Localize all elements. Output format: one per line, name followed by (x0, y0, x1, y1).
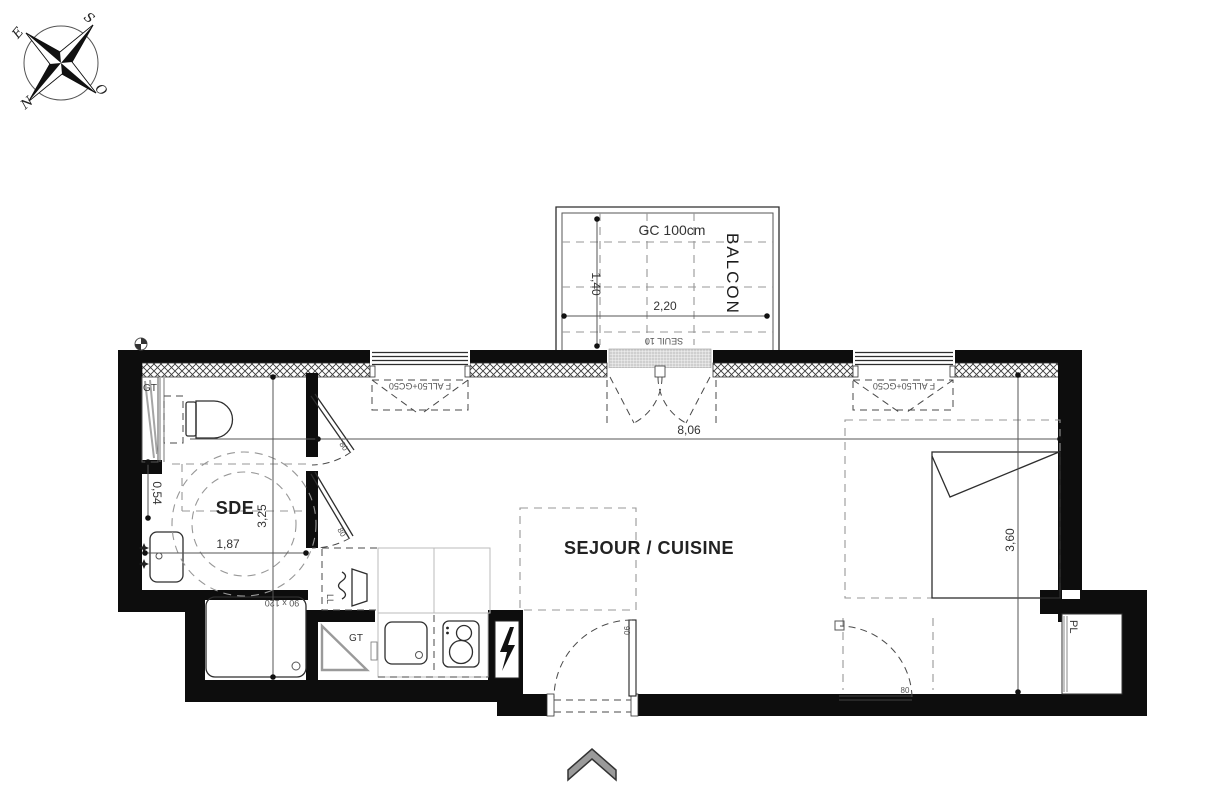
bed (845, 420, 1060, 598)
dim-living-width: 8,06 (677, 423, 701, 437)
compass-south-label: S (80, 10, 97, 27)
washer-label: LL (325, 594, 335, 604)
closet-pl: PL (1062, 614, 1122, 694)
future-door-size: 80 (901, 686, 910, 695)
duct-kitchen-label: GT (349, 633, 363, 644)
duct-top-label: GT (143, 383, 157, 394)
toilet (164, 396, 233, 443)
dim-bathroom-length: 3,25 (255, 504, 269, 528)
balcony-width-dim: 2,20 (653, 299, 677, 313)
balcony: 1,40 2,20 GC 100cm BALCON SEUIL 10 (556, 207, 779, 350)
compass-west-label: O (92, 81, 110, 99)
balcony-depth-dim: 1,40 (589, 272, 603, 296)
living-room-label: SEJOUR / CUISINE (564, 538, 734, 558)
cooktop (443, 621, 479, 667)
dim-basin-offset: 0,54 (150, 481, 164, 505)
balcony-door (607, 349, 716, 427)
window-left-label: F ALL50+GC50 (389, 381, 451, 391)
compass-east-label: E (9, 24, 28, 42)
balcony-threshold-note: SEUIL 10 (645, 336, 683, 346)
duct-kitchen: GT (322, 626, 377, 670)
kitchen-sink (385, 622, 427, 664)
electrical-panel (495, 621, 519, 678)
shower-tray: 90 x 120 (206, 597, 306, 677)
washer-space: LL (322, 548, 378, 610)
balcony-room-label: BALCON (723, 233, 742, 315)
benchmark-icon (135, 338, 147, 350)
compass-rose-icon: S E O N (9, 10, 110, 114)
window-right-label: F ALL50+GC50 (873, 381, 935, 391)
balcony-guardrail-note: GC 100cm (639, 222, 706, 238)
future-partition: 80 (835, 618, 933, 700)
shower-size-label: 90 x 120 (265, 598, 300, 608)
window-right: F ALL50+GC50 (853, 350, 955, 412)
dim-bathroom-width: 1,87 (216, 537, 240, 551)
bathroom-door2-size: 80 (335, 526, 348, 539)
duct-top: GT (142, 377, 164, 462)
entrance-door-size: 90 (622, 626, 631, 635)
entrance-arrow-icon (568, 749, 616, 780)
bathroom-label: SDE (216, 498, 255, 518)
washbasin (139, 532, 183, 582)
dimension-lines: 8,06 3,60 3,25 0,54 1,87 (142, 372, 1063, 695)
dim-living-depth: 3,60 (1003, 528, 1017, 552)
window-left: F ALL50+GC50 (370, 350, 470, 412)
living-room: SEJOUR / CUISINE 80 (520, 420, 1060, 700)
closet-label: PL (1067, 620, 1079, 633)
floor-plan-sheet: S E O N 1,40 2,20 GC 100cm BALCON SEUIL … (0, 0, 1207, 800)
floor-plan-drawing: S E O N 1,40 2,20 GC 100cm BALCON SEUIL … (0, 0, 1207, 800)
entrance: 90 (547, 620, 638, 780)
